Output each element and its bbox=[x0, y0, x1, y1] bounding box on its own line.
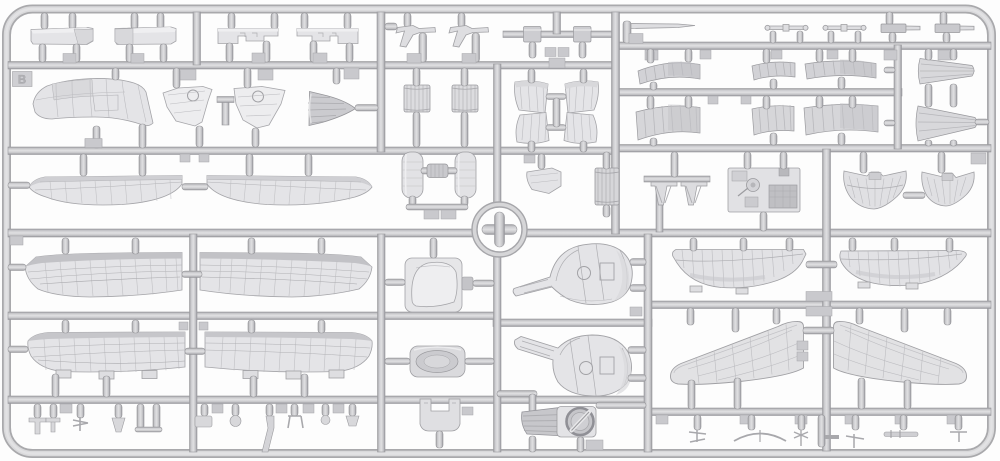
svg-text:B: B bbox=[18, 75, 26, 87]
